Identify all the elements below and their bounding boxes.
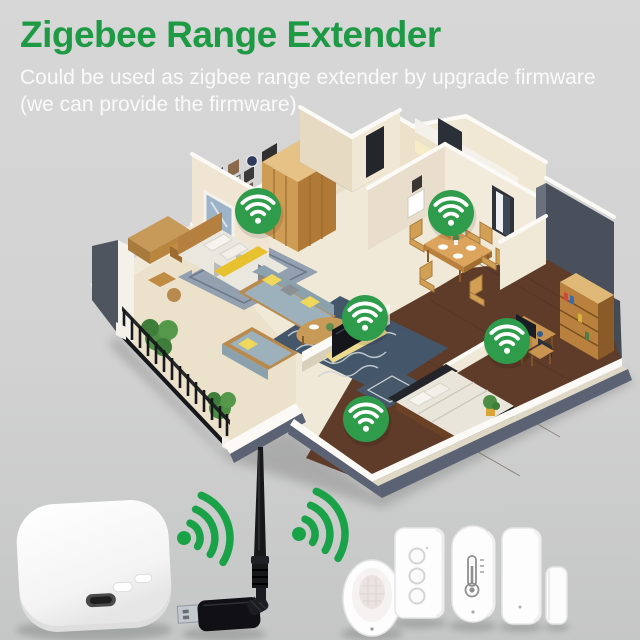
product-banner: Zigebee Range Extender Could be used as …	[0, 0, 640, 640]
subtitle-line-2: (we can provide the firmware)	[20, 91, 626, 118]
wall-clock	[247, 156, 258, 167]
wifi-signal-icon-right	[281, 486, 353, 569]
pir-motion-sensor	[343, 560, 401, 636]
pir-dome	[359, 575, 385, 609]
hub-button	[135, 574, 152, 583]
switch-button	[410, 589, 425, 604]
switch-button	[410, 569, 425, 584]
usb-dongle	[177, 597, 261, 634]
header: Zigebee Range Extender Could be used as …	[20, 16, 626, 118]
page-title: Zigebee Range Extender	[20, 16, 626, 55]
smart-wall-switch	[395, 528, 443, 618]
hub-button	[113, 582, 132, 592]
temperature-humidity-sensor	[452, 526, 494, 622]
pouf	[167, 288, 181, 302]
zigbee-gateway-hub	[15, 498, 173, 634]
door-window-sensor	[502, 528, 567, 624]
subtitle-line-1: Could be used as zigbee range extender b…	[20, 64, 626, 91]
switch-button	[410, 549, 425, 564]
west-corner-outer-wall	[92, 240, 118, 334]
usb-wifi-antenna	[177, 447, 270, 633]
wifi-signal-icon-left	[166, 490, 238, 573]
